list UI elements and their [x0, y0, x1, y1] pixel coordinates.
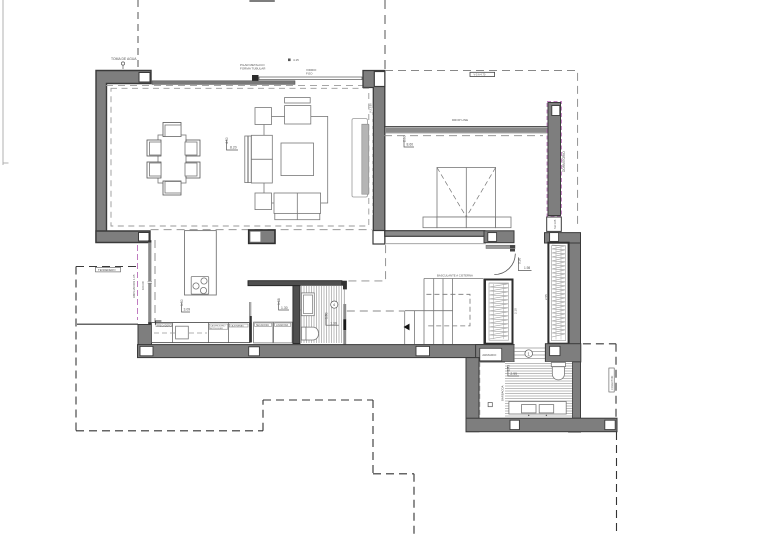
- svg-text:TOMA DE AGUA: TOMA DE AGUA: [111, 57, 137, 61]
- svg-text:4.50: 4.50: [225, 137, 229, 144]
- svg-text:SECADORA: SECADORA: [256, 324, 269, 327]
- svg-text:FREGADERO: FREGADERO: [157, 324, 172, 327]
- svg-text:CACEROLERO: CACEROLERO: [210, 324, 226, 327]
- svg-text:3.09: 3.09: [184, 308, 191, 312]
- svg-text:1.30: 1.30: [330, 321, 337, 325]
- svg-text:2.10: 2.10: [514, 308, 518, 314]
- svg-text:4.15: 4.15: [293, 58, 299, 62]
- svg-text:FIJO: FIJO: [306, 72, 313, 76]
- svg-text:TENDEDERO: TENDEDERO: [98, 268, 116, 272]
- svg-text:1.98: 1.98: [524, 266, 530, 270]
- svg-text:1.90: 1.90: [324, 312, 328, 319]
- svg-text:8.60: 8.60: [407, 143, 414, 147]
- svg-text:SH 1.05: SH 1.05: [553, 219, 557, 229]
- svg-text:DORMITORIO: DORMITORIO: [562, 151, 566, 172]
- svg-text:BASCULANTE A CISTERNA: BASCULANTE A CISTERNA: [437, 274, 473, 278]
- svg-text:AMPLIACION 1.05: AMPLIACION 1.05: [132, 274, 136, 298]
- svg-text:ARMARIO: ARMARIO: [482, 353, 497, 357]
- svg-text:1.50: 1.50: [180, 299, 184, 306]
- svg-text:2.99: 2.99: [510, 372, 517, 376]
- svg-text:V-2 2.60: V-2 2.60: [369, 103, 373, 113]
- svg-text:2.55: 2.55: [544, 294, 548, 300]
- svg-text:100.08: 100.08: [141, 281, 145, 290]
- svg-text:2.60: 2.60: [403, 135, 407, 142]
- svg-text:COLECTOR: COLECTOR: [610, 376, 614, 390]
- svg-text:8.20: 8.20: [230, 146, 237, 150]
- svg-text:1.75: 1.75: [506, 365, 510, 372]
- svg-text:DROP LINE: DROP LINE: [452, 118, 468, 122]
- svg-text:BOTELLERO: BOTELLERO: [210, 328, 223, 330]
- svg-text:1.30: 1.30: [281, 306, 288, 310]
- svg-text:1.88: 1.88: [277, 298, 281, 305]
- svg-text:BARBACOA: BARBACOA: [501, 385, 505, 401]
- svg-text:CAJONERAS: CAJONERAS: [230, 325, 244, 328]
- svg-text:0.90: 0.90: [517, 258, 521, 264]
- svg-text:FORMA TUBULAR: FORMA TUBULAR: [240, 67, 266, 71]
- svg-text:V-5 A 4.70: V-5 A 4.70: [474, 73, 486, 77]
- svg-text:LAVADORA: LAVADORA: [276, 324, 289, 327]
